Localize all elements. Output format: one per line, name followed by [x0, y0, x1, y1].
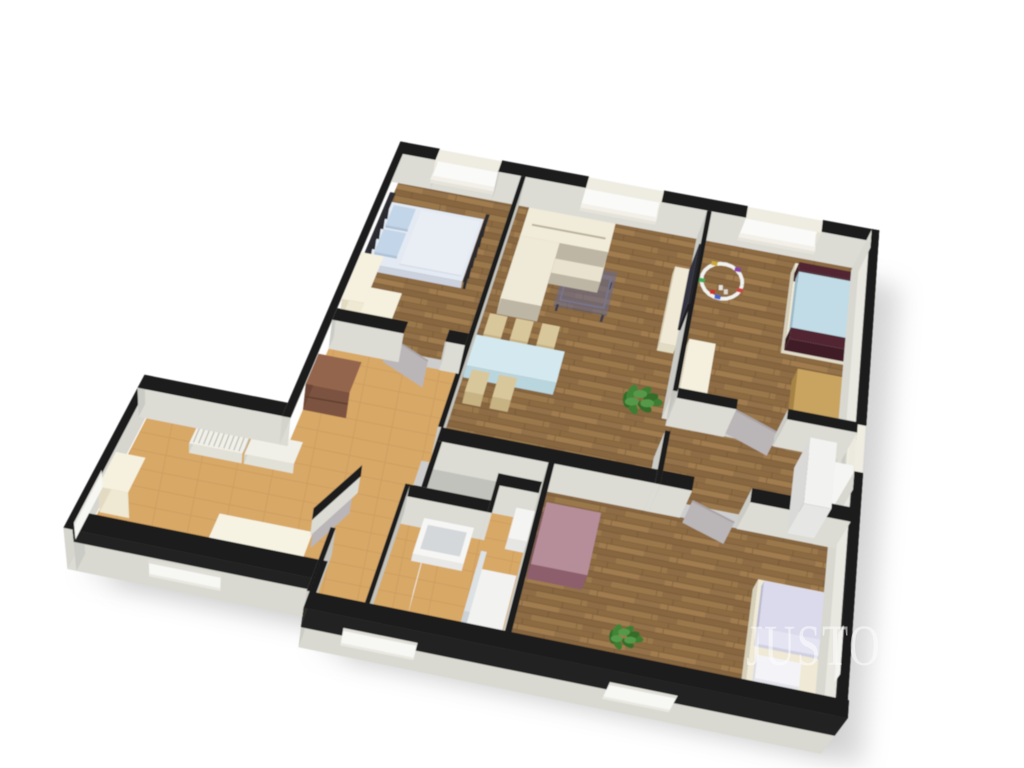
svg-text:JUSTO: JUSTO: [746, 615, 881, 679]
